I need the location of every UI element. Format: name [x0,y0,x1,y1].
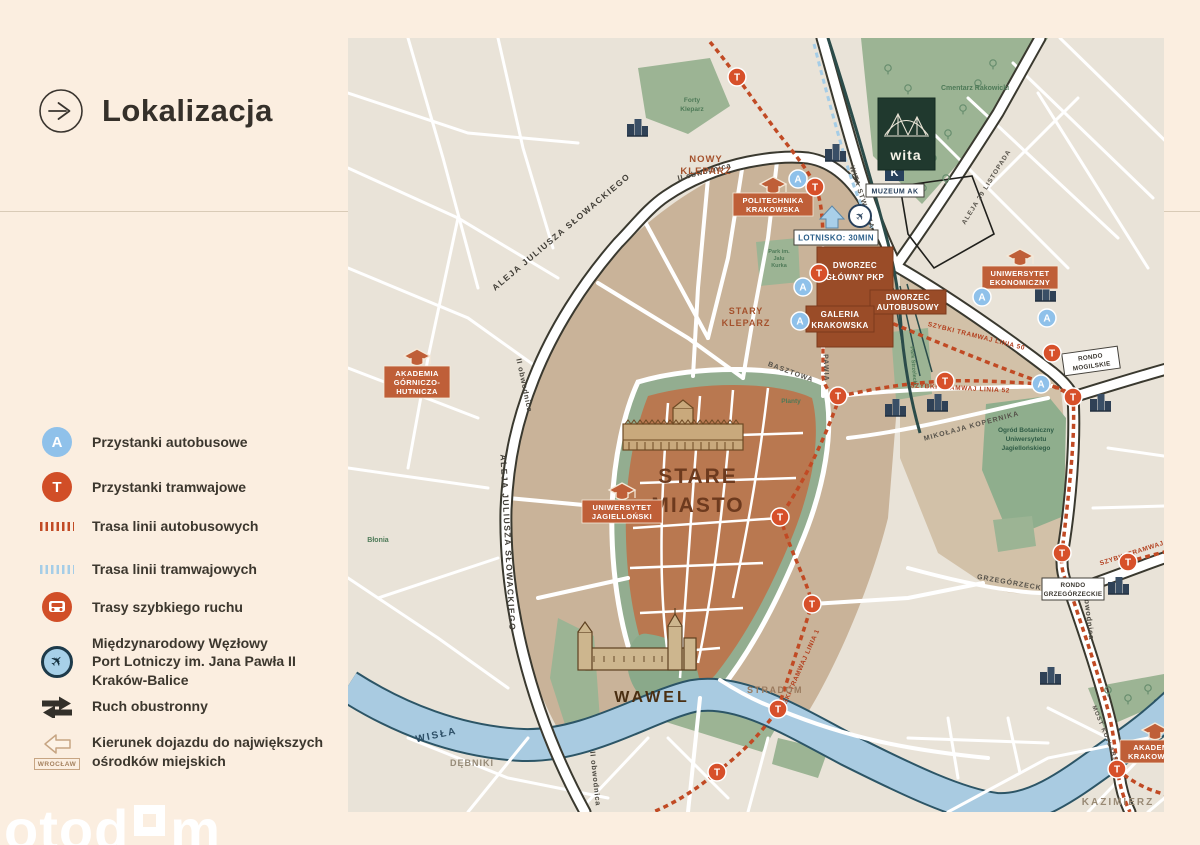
svg-text:A: A [978,293,985,304]
svg-text:T: T [734,73,740,84]
svg-text:T: T [816,269,822,280]
svg-text:T: T [1070,393,1076,404]
legend-item-bus-stops: A Przystanki autobusowe [40,427,248,457]
bus-stop-icon: A [42,427,72,457]
park-label-cmentarz: Cmentarz Rakowicki [941,85,1009,92]
area-nowy-kleparz-1: NOWY [689,154,723,165]
svg-text:UNIWERSYTET: UNIWERSYTET [593,503,652,512]
svg-text:A: A [796,317,803,328]
svg-text:POLITECHNIKA: POLITECHNIKA [742,196,803,205]
wroclaw-badge: WROCŁAW [34,758,81,770]
svg-text:T: T [1059,549,1065,560]
svg-text:KRAKOWSKA: KRAKOWSKA [746,205,800,214]
page-title: Lokalizacja [102,93,273,129]
legend-item-airport: ✈ Międzynarodowy Węzłowy Port Lotniczy i… [40,634,296,689]
svg-text:A: A [794,175,801,186]
svg-text:T: T [835,392,841,403]
svg-text:LOTNISKO: 30MIN: LOTNISKO: 30MIN [798,234,874,243]
galeria-krakowska: GALERIA KRAKOWSKA [806,306,874,332]
svg-text:T: T [1114,765,1120,776]
legend-label: Międzynarodowy Węzłowy Port Lotniczy im.… [92,634,296,689]
plane-circle-icon [38,88,84,134]
area-blonia: Błonia [367,537,388,544]
svg-text:T: T [809,600,815,611]
right-divider [1164,211,1200,212]
area-debniki: DĘBNIKI [450,758,494,768]
page: { "header": { "title": "Lokalizacja" }, … [0,0,1200,845]
svg-text:UNIWERSYTET: UNIWERSYTET [991,269,1050,278]
svg-text:KRAKOWSKA: KRAKOWSKA [1128,752,1164,761]
svg-text:MUZEUM AK: MUZEUM AK [871,189,918,196]
svg-text:DWORZEC: DWORZEC [886,293,930,302]
otodom-watermark: otodm [4,797,221,845]
airport-icon: ✈ [41,646,73,678]
park-label-ogrod-3: Jagiellońskiego [1002,445,1051,452]
svg-text:T: T [812,183,818,194]
svg-text:EKONOMICZNY: EKONOMICZNY [990,278,1051,287]
otodom-square-glyph [134,805,165,836]
svg-text:GŁÓWNY PKP: GŁÓWNY PKP [826,273,885,282]
legend-item-direction: WROCŁAW Kierunek dojazdu do największych… [40,733,323,770]
svg-text:A: A [1037,380,1044,391]
legend-label: Przystanki autobusowe [92,433,248,451]
legend-label: Kierunek dojazdu do największych ośrodkó… [92,733,323,770]
map-krakow: ALEJA JULIUSZA SŁOWACKIEGO ALEJA JULIUSZ… [348,38,1164,812]
car-icon [42,592,72,622]
svg-text:GRZEGÓRZECKIE: GRZEGÓRZECKIE [1044,589,1103,598]
legend-item-bus-route: Trasa linii autobusowych [40,514,258,538]
area-stradom: STRADOM [747,685,803,695]
svg-text:AKADEMIA: AKADEMIA [1133,743,1164,752]
svg-text:T: T [942,377,948,388]
street-pawia: PAWIA [822,354,830,382]
area-stare-miasto-2: MIASTO [651,494,744,517]
two-way-arrows-icon [40,694,74,718]
svg-text:T: T [775,705,781,716]
map-svg: ALEJA JULIUSZA SŁOWACKIEGO ALEJA JULIUSZ… [348,38,1164,812]
dworzec-autobusowy: DWORZEC AUTOBUSOWY [870,290,946,314]
svg-text:HUTNICZA: HUTNICZA [396,387,438,396]
legend-item-expressways: Trasy szybkiego ruchu [40,592,243,622]
svg-text:T: T [777,513,783,524]
legend-label: Trasa linii tramwajowych [92,560,257,578]
wita-wordmark: wita [889,147,921,163]
svg-text:T: T [1125,558,1131,569]
legend-item-two-way: Ruch obustronny [40,694,208,718]
svg-text:KRAKOWSKA: KRAKOWSKA [811,321,868,330]
left-divider [0,211,348,212]
svg-text:T: T [714,768,720,779]
tram-route-dash-icon [40,565,74,574]
svg-text:GÓRNICZO-: GÓRNICZO- [394,378,441,387]
legend-item-tram-route: Trasa linii tramwajowych [40,557,257,581]
svg-text:T: T [1049,349,1055,360]
legend-label: Ruch obustronny [92,697,208,715]
legend-label: Przystanki tramwajowe [92,478,246,496]
rondo-grzegorzeckie-label: RONDO GRZEGÓRZECKIE [1042,578,1104,600]
area-nowy-kleparz-2: KLEPARZ [680,166,731,177]
svg-text:AKADEMIA: AKADEMIA [395,369,439,378]
park-label-ogrod-1: Ogród Botaniczny [998,427,1054,434]
svg-text:A: A [1043,314,1050,325]
svg-text:GALERIA: GALERIA [821,310,860,319]
svg-text:A: A [799,283,806,294]
area-stare-miasto-1: STARE [658,465,738,488]
plane-glyph: ✈ [47,652,67,672]
park-label-jalu-1: Park im. [768,249,790,255]
park-label-jalu-2: Jalu [773,256,784,262]
area-wawel: WAWEL [614,689,689,706]
page-header: Lokalizacja [38,88,273,134]
park-small-east [993,516,1036,552]
park-label-forty-1: Forty [684,97,701,104]
park-label-jalu-3: Kurka [771,263,788,269]
legend-label: Trasy szybkiego ruchu [92,598,243,616]
wita-logo: wita [878,98,935,170]
svg-text:RONDO: RONDO [1061,582,1086,589]
svg-text:JAGIELLOŃSKI: JAGIELLOŃSKI [592,512,652,521]
legend-label: Trasa linii autobusowych [92,517,258,535]
park-label-ogrod-2: Uniwersytetu [1006,436,1047,443]
svg-text:AUTOBUSOWY: AUTOBUSOWY [877,303,940,312]
tram-stop-icon: T [42,472,72,502]
area-kazimierz: KAZIMIERZ [1082,797,1154,808]
svg-text:DWORZEC: DWORZEC [833,261,877,270]
area-stary-kleparz-1: STARY [729,306,764,316]
park-label-forty-2: Kleparz [680,106,704,113]
direction-arrow-icon: WROCŁAW [34,733,81,770]
bus-route-dash-icon [40,522,74,531]
park-label-planty: Planty [781,398,801,405]
area-stary-kleparz-2: KLEPARZ [722,318,771,328]
legend-item-tram-stops: T Przystanki tramwajowe [40,472,246,502]
